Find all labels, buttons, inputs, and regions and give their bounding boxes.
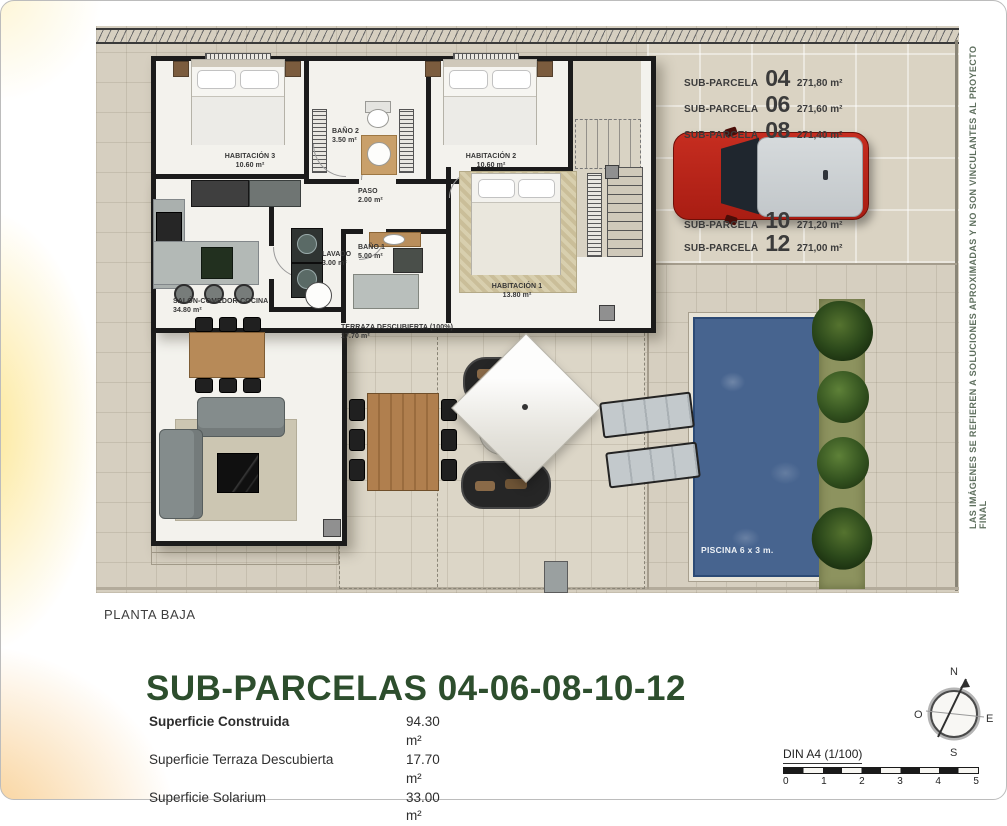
stairs-upper-flight-dashed [575,119,641,169]
subparcela-area: 271,80 m² [797,78,843,89]
areas-row: Superficie Terraza Descubierta 17.70 m² [149,751,459,789]
boiler [305,282,332,309]
floor-label: PLANTA BAJA [104,607,196,622]
room-label-habitacion1: HABITACIÓN 113.80 m² [481,282,553,301]
sink [383,234,405,245]
pillow [197,70,236,89]
patio-chair [349,429,365,451]
wall [269,307,346,312]
areas-row-value: 17.70 m² [406,751,459,789]
pillar [605,165,619,179]
patio-chair [441,459,457,481]
subparcela-area: 271,00 m² [797,243,843,254]
subparcela-number: 06 [765,91,790,118]
subparcela-name: SUB-PARCELA [684,104,758,115]
subparcela-number: 08 [765,117,790,144]
areas-row-value: 33.00 m² [406,789,459,826]
car-windshield [721,136,759,216]
duvet [192,96,284,145]
parasol-pole [522,404,528,410]
utility-box [544,561,568,593]
scale-tick: 5 [973,776,979,787]
closet-hatch [399,109,414,173]
subparcela-row: SUB-PARCELA 12 271,00 m² [684,230,842,257]
subparcela-row: SUB-PARCELA 04 271,80 m² [684,65,842,92]
areas-table: Superficie Construida 94.30 m² Superfici… [149,713,459,826]
dining-chair [195,378,213,393]
wall [304,61,309,179]
duvet [472,202,560,275]
plot-boundary-top [96,28,959,44]
room-label-bano2: BAÑO 23.50 m² [332,127,359,146]
island-sink [201,247,233,279]
disclaimer-vertical-text: LAS IMÁGENES SE REFIEREN A SOLUCIONES AP… [969,29,987,529]
room-label-bano1: BAÑO 15.00 m² [358,243,385,262]
pillow [478,179,515,198]
parcel-line-horizontal [647,263,957,265]
patio-chair [349,399,365,421]
scale-bar: DIN A4 (1/100) 0 1 2 3 4 5 [783,745,979,787]
window-hatch [587,173,602,257]
subparcela-number: 12 [765,230,790,257]
pillow [518,179,555,198]
areas-row: Superficie Construida 94.30 m² [149,713,459,751]
sofa [159,429,203,519]
car-roof [757,137,863,217]
bed-headboard [444,60,536,67]
room-label-terraza: TERRAZA DESCUBIERTA (100%)17.70 m² [341,323,453,342]
dining-table [189,332,265,378]
page-frame: PISCINA 6 x 3 m. [0,0,1007,800]
scale-tick: 1 [821,776,827,787]
compass-east-label: E [986,713,993,725]
scale-label: DIN A4 (1/100) [783,747,862,764]
nightstand [173,61,189,77]
fridge [249,180,301,207]
pillar [599,305,615,321]
scale-ticks: 0 1 2 3 4 5 [783,776,979,787]
wall [426,61,431,184]
scale-tick: 4 [935,776,941,787]
exterior-steps [151,552,339,565]
wall [156,174,309,179]
pillow [492,70,531,89]
sofa [197,397,285,437]
wall [568,61,573,184]
dining-chair [243,378,261,393]
bed [191,59,285,145]
compass-west-label: O [914,709,923,721]
scale-tick: 3 [897,776,903,787]
tall-oven-unit [191,180,249,207]
duvet [444,96,536,145]
scale-ruler [783,767,979,774]
wall [304,179,359,184]
page-title: SUB-PARCELAS 04-06-08-10-12 [146,669,686,709]
subparcela-name: SUB-PARCELA [684,243,758,254]
scale-tick: 0 [783,776,789,787]
shower-unit [393,248,423,273]
bush [817,371,869,423]
room-label-lavado: LAVADO3.00 m² [322,250,351,269]
patio-chair [349,459,365,481]
dining-chair [195,317,213,332]
shower-tray [353,274,419,309]
stairs-lower-flight [607,167,643,257]
areas-row-label: Superficie Solarium [149,789,406,826]
pool [689,313,829,581]
pillar [323,519,341,537]
areas-row: Superficie Solarium 33.00 m² [149,789,459,826]
dining-chair [219,317,237,332]
bed [443,59,537,145]
subparcela-number: 04 [765,65,790,92]
areas-row-label: Superficie Construida [149,713,406,751]
room-label-salon: SALÓN-COMEDOR-COCINA34.80 m² [173,297,268,316]
subparcela-row: SUB-PARCELA 06 271,60 m² [684,91,842,118]
car-roof-detail [823,170,828,180]
nightstand [285,61,301,77]
bush [812,301,873,361]
dining-chair [243,317,261,332]
shower-drain [367,142,391,166]
subparcela-name: SUB-PARCELA [684,130,758,141]
cooktop [156,212,182,243]
scale-tick: 2 [859,776,865,787]
subparcela-area: 271,60 m² [797,104,843,115]
pillow [449,70,488,89]
bush [817,437,869,489]
patio-table [367,393,439,491]
subparcela-name: SUB-PARCELA [684,78,758,89]
toilet [367,109,389,128]
room-label-paso: PASO2.00 m² [358,187,383,206]
bed [471,173,561,275]
areas-row-label: Superficie Terraza Descubierta [149,751,406,789]
coffee-table [217,453,259,493]
washer-door [297,234,317,254]
pool-label: PISCINA 6 x 3 m. [701,545,774,556]
plot-boundary-right [955,40,958,591]
room-label-habitacion2: HABITACIÓN 210.60 m² [449,152,533,171]
compass-north-label: N [950,666,958,678]
subparcela-row: SUB-PARCELA 08 271,40 m² [684,117,842,144]
areas-row-value: 94.30 m² [406,713,459,751]
daybed-cushion [475,481,495,491]
room-label-habitacion3: HABITACIÓN 310.60 m² [208,152,292,171]
nightstand [537,61,553,77]
nightstand [425,61,441,77]
dining-chair [219,378,237,393]
pillow [240,70,279,89]
patio-chair [441,429,457,451]
subparcela-area: 271,40 m² [797,130,843,141]
bed-headboard [192,60,284,67]
